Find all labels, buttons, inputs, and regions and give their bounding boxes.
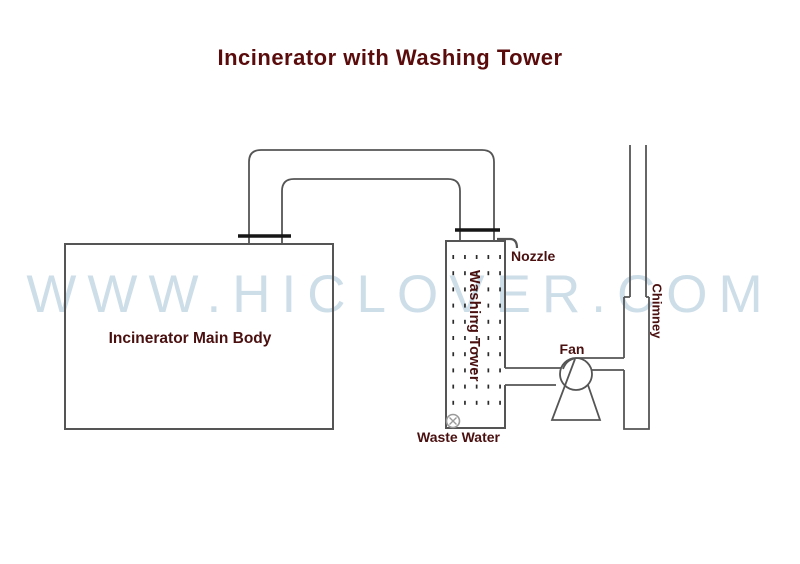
exhaust-duct-inner [282,179,460,244]
chimney-outline [624,145,649,429]
nozzle-label: Nozzle [511,248,555,264]
drain-valve-icon [447,415,460,428]
waste-water-label: Waste Water [417,429,500,445]
incinerator-label: Incinerator Main Body [100,330,280,348]
fan-circle [560,358,592,390]
fan-label: Fan [548,341,596,357]
diagram-canvas: WWW.HICLOVER.COM Incinerat [0,0,800,564]
tower-to-fan-duct [505,368,561,385]
incinerator-diagram [0,0,800,564]
washing-tower-label: Washing Tower [466,270,482,382]
chimney-label: Chimney [650,284,665,339]
page-title: Incinerator with Washing Tower [0,45,780,71]
